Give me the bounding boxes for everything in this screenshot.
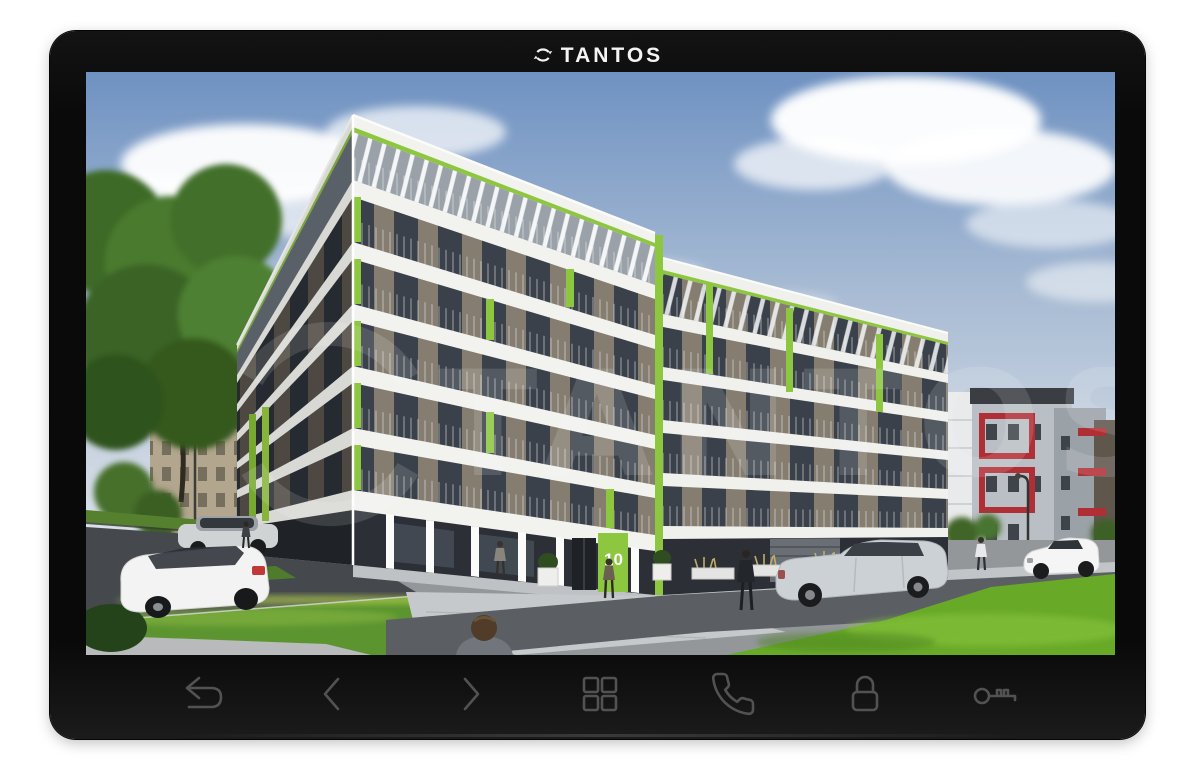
back-button[interactable]: [176, 665, 234, 723]
chevron-right-icon: [446, 670, 494, 718]
phone-icon: [709, 670, 757, 718]
touch-button-bar: [50, 655, 1145, 739]
lock-button[interactable]: [836, 665, 894, 723]
brand-logo-text: TANTOS: [561, 45, 663, 66]
padlock-icon: [841, 670, 889, 718]
next-button[interactable]: [441, 665, 499, 723]
circular-arrows-icon: [532, 44, 554, 66]
watermark-text: TANTOS: [438, 340, 1115, 510]
screen-photo: 10: [86, 72, 1115, 655]
parked-car-white: [121, 546, 269, 618]
unlock-button[interactable]: [966, 665, 1024, 723]
prev-button[interactable]: [304, 665, 362, 723]
chevron-left-icon: [309, 670, 357, 718]
return-arrow-icon: [181, 670, 229, 718]
key-icon: [971, 670, 1019, 718]
product-photo-stage: TANTOS: [0, 0, 1200, 773]
grid-icon: [576, 670, 624, 718]
monitor-screen: 10: [86, 72, 1115, 655]
intercom-monitor-frame: TANTOS: [50, 31, 1145, 739]
call-button[interactable]: [704, 665, 762, 723]
brand-logo: TANTOS: [50, 39, 1145, 71]
menu-button[interactable]: [571, 665, 629, 723]
